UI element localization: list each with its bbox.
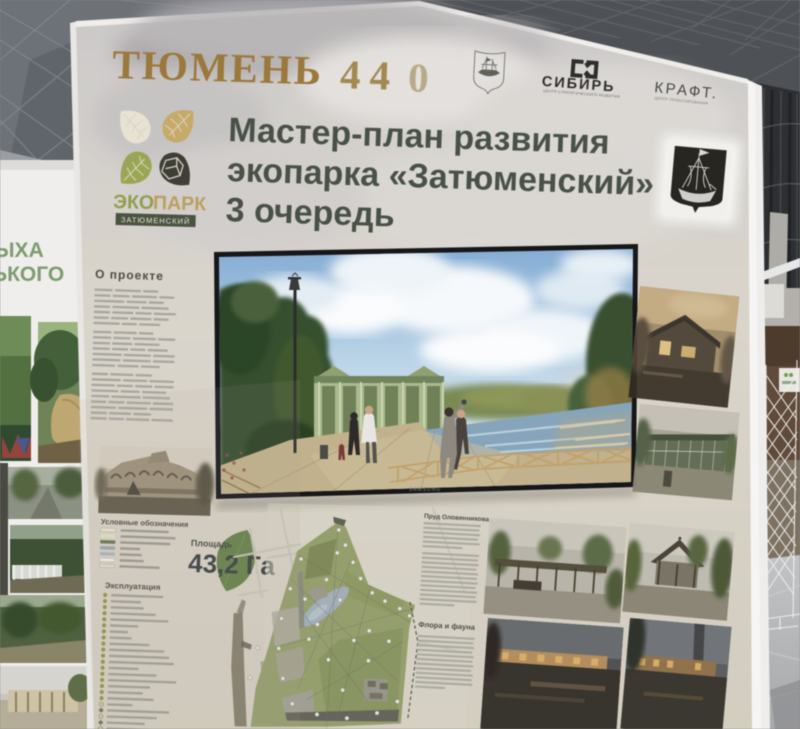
svg-text:ЫХА: ЫХА	[0, 239, 44, 262]
svg-text:SAMSUNG: SAMSUNG	[409, 487, 441, 493]
svg-text:ЬКОГО: ЬКОГО	[0, 263, 64, 286]
